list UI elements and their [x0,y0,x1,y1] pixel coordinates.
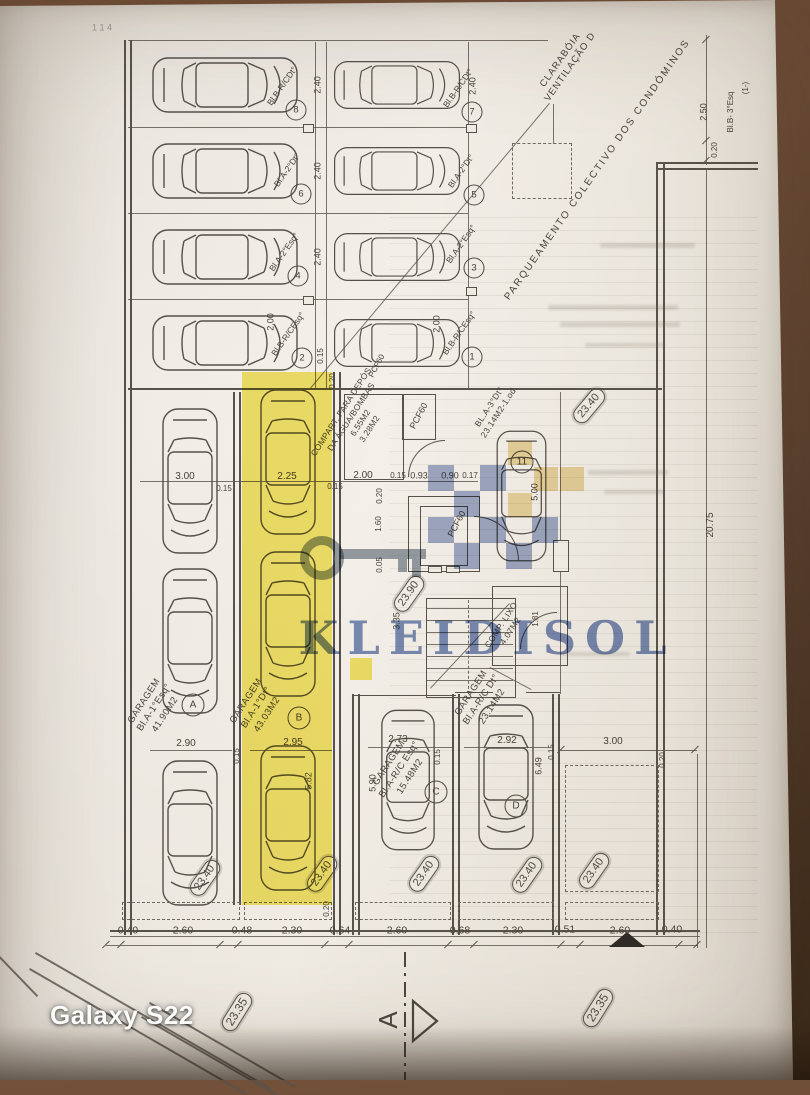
stall-number-badge: 4 [288,266,309,287]
key-icon [412,559,421,577]
column-marker [466,124,477,133]
dimension-label: 0.15 [232,748,242,764]
wall-line [128,40,548,41]
logo-pixel-blue [428,517,454,543]
dimension-label: 0.40 [118,925,138,938]
leader-line [553,104,554,144]
stall-number-badge: 8 [286,100,307,121]
wall-line [124,40,126,935]
corner-reference: Bl.B- 3°Esq [726,92,736,133]
wall-line [233,392,235,905]
dimension-label: 2.90 [176,738,195,750]
dimension-label: 0.20 [375,488,385,504]
dimension-label: 0.64 [330,925,350,938]
dimension-line [150,750,232,751]
wall-line [656,168,758,170]
car-top-view-icon [332,143,462,199]
dimension-label: 2.00 [266,313,277,331]
dimension-label: 2.30 [282,925,302,938]
logo-pixel-blue [480,517,506,543]
logo-pixel-gold [534,467,558,491]
dimension-line [706,35,707,165]
logo-pixel-blue [506,543,532,569]
dimension-label: 0.15 [216,484,232,494]
logo-pixel-gold [560,467,584,491]
dimension-label: 2.40 [313,76,324,94]
faint-marks: 1 1 4 [92,23,112,34]
wall-line [358,694,360,935]
section-letter: A [373,1011,405,1028]
key-icon [398,559,407,572]
dimension-label: 0.15 [316,348,326,364]
dimension-label: 1.60 [374,516,384,532]
logo-pixel-gold [508,493,532,517]
dimension-label: 5.90 [368,774,379,792]
logo-pixel-blue [454,491,480,517]
wall-line [239,392,241,905]
column-marker [303,124,314,133]
logo-pixel-blue [454,543,480,569]
column-marker [303,296,314,305]
dimension-label: 2.50 [699,103,710,121]
logo-pixel-blue [428,465,454,491]
dimension-label: 3.00 [175,471,194,483]
logo-pixel-blue [480,465,506,491]
wall-line [352,694,354,935]
dimension-label: 2.40 [468,77,479,95]
dimension-label: 2.00 [353,470,372,482]
dimension-label: 2.40 [313,162,324,180]
garage-badge: A [182,694,205,717]
dimension-label: 0.20 [710,142,720,158]
car-top-view-icon [150,140,300,202]
corner-reference: (1-) [741,82,751,94]
skylight-dashed-box [512,143,572,199]
logo-pixel-gold [508,441,532,465]
stall-divider-line [128,127,468,128]
key-icon [340,549,426,559]
stall-number-badge: 6 [291,184,312,205]
camera-watermark: Galaxy S22 [50,1000,194,1031]
wall-line [130,40,132,935]
stall-number-badge: 5 [464,185,485,206]
dimension-label: 0.05 [375,557,385,573]
stall-divider-line [315,42,316,388]
section-arrow-icon [410,998,440,1044]
stall-divider-line [326,42,327,388]
dimension-label: 0.48 [232,925,252,938]
stall-number-badge: 2 [292,348,313,369]
logo-pixel-blue [532,517,558,543]
key-icon [300,536,344,580]
dimension-label: 2.60 [173,925,193,938]
dimension-label: 2.40 [313,248,324,266]
ruled-paper-showthrough [390,205,758,940]
brand-watermark-text: KLEIDISOL [299,611,676,665]
stall-number-badge: 7 [462,102,483,123]
